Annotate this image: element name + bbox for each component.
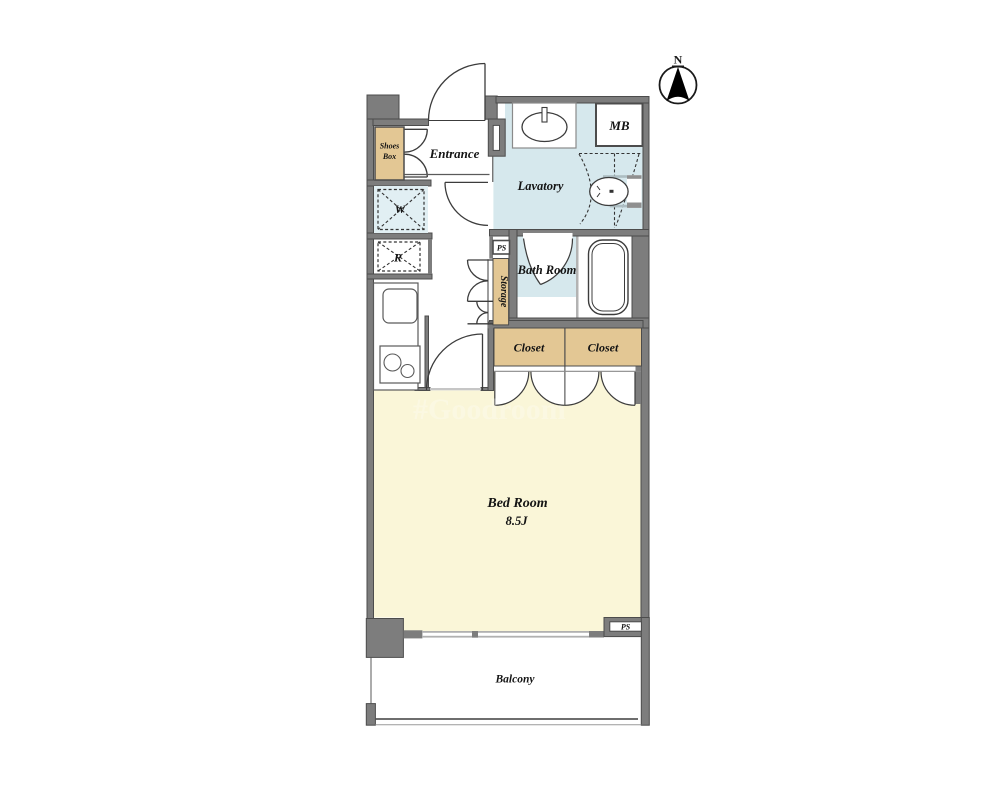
svg-text:Storage: Storage <box>498 276 509 308</box>
svg-text:Shoes: Shoes <box>380 142 400 151</box>
svg-text:PS: PS <box>621 623 631 632</box>
svg-text:Bed Room: Bed Room <box>486 496 547 511</box>
svg-text:MB: MB <box>608 118 630 133</box>
svg-text:PS: PS <box>497 244 507 253</box>
svg-text:Closet: Closet <box>514 341 545 355</box>
svg-text:Entrance: Entrance <box>429 146 480 161</box>
svg-text:#Goodroom: #Goodroom <box>413 393 566 426</box>
svg-text:Closet: Closet <box>588 341 619 355</box>
svg-text:Lavatory: Lavatory <box>517 179 564 193</box>
svg-text:W: W <box>395 202 407 216</box>
svg-text:Balcony: Balcony <box>495 674 536 686</box>
svg-text:Bath Room: Bath Room <box>517 263 577 277</box>
svg-text:Box: Box <box>382 152 396 161</box>
svg-text:N: N <box>674 53 683 67</box>
svg-text:8.5J: 8.5J <box>506 514 529 528</box>
svg-text:R: R <box>393 251 402 265</box>
